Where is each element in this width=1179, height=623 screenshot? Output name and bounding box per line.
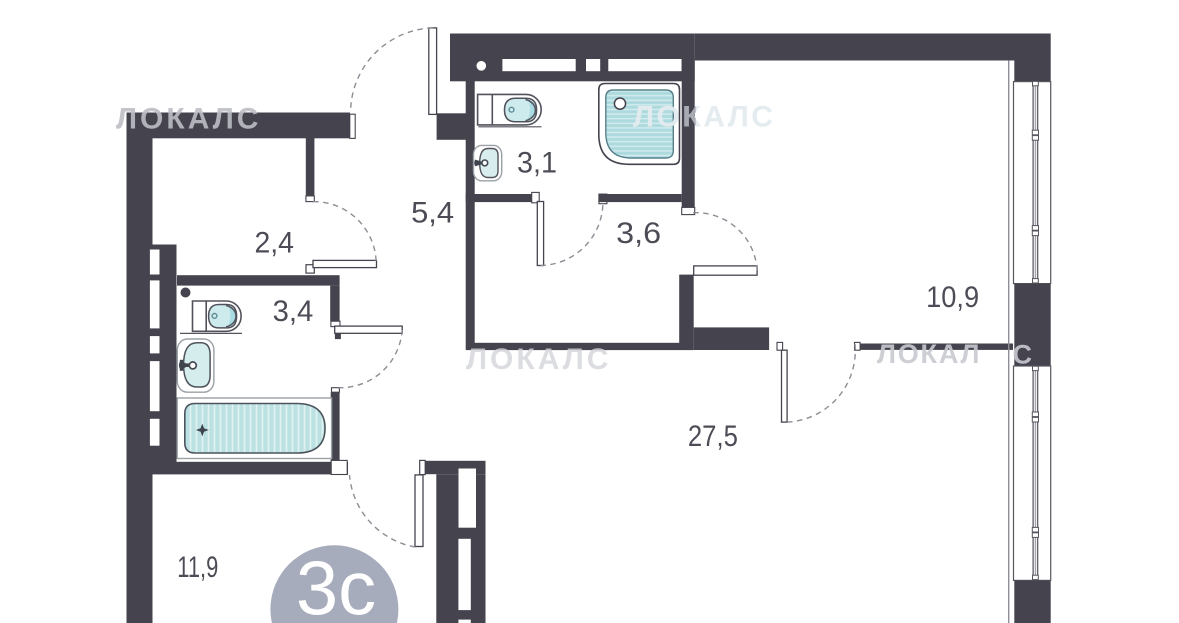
svg-text:С: С xyxy=(1013,340,1033,370)
svg-text:ЛОКАЛС: ЛОКАЛС xyxy=(633,101,775,134)
svg-text:3,4: 3,4 xyxy=(273,295,314,328)
svg-text:2,4: 2,4 xyxy=(254,226,294,259)
svg-text:3с: 3с xyxy=(296,547,376,623)
svg-text:10,9: 10,9 xyxy=(926,281,979,314)
svg-text:11,9: 11,9 xyxy=(177,551,218,584)
svg-text:3,1: 3,1 xyxy=(517,146,557,179)
svg-text:27,5: 27,5 xyxy=(688,420,738,453)
svg-text:3,6: 3,6 xyxy=(616,217,661,250)
svg-text:ЛОКАЛ: ЛОКАЛ xyxy=(877,339,981,369)
svg-text:5,4: 5,4 xyxy=(411,197,454,230)
svg-text:ЛОКАЛС: ЛОКАЛС xyxy=(116,103,261,136)
svg-text:ЛОКАЛС: ЛОКАЛС xyxy=(466,343,611,376)
